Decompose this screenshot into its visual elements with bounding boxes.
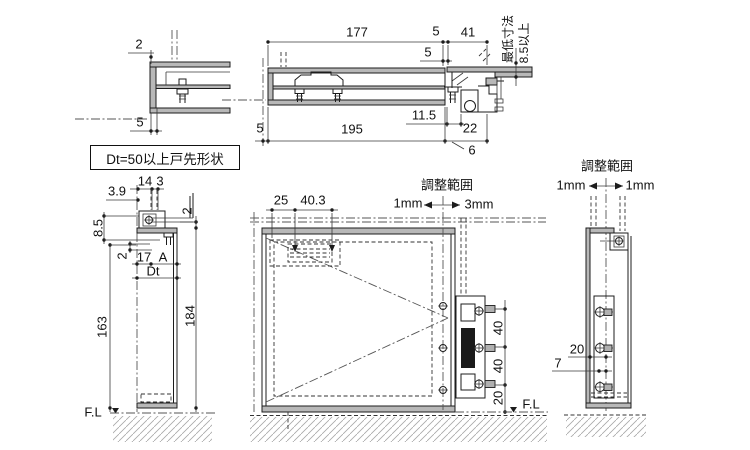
adjust-min-center: 1mm	[394, 197, 423, 210]
corner-detail-drawing	[75, 30, 230, 135]
latch-opening	[461, 328, 475, 368]
dim-head-lip: 6	[468, 144, 475, 157]
dim-edge-184: 184	[184, 305, 197, 327]
dim-edge-a: A	[159, 251, 168, 264]
label-min-dimension: 最低寸法	[502, 15, 514, 63]
dim-edge-2-right: 2	[181, 207, 194, 214]
dim-corner-bottom: 5	[136, 116, 143, 129]
corner-top-flange	[150, 62, 230, 67]
dim-elev-40a: 40	[492, 321, 505, 335]
dim-elev-20: 20	[492, 391, 505, 405]
adjust-max-center: 3mm	[465, 198, 494, 211]
dim-edge-dt: Dt	[147, 265, 160, 278]
adjust-max-right: 1mm	[626, 179, 655, 192]
jamb-wall	[586, 228, 590, 408]
ground-hatch-right	[566, 417, 646, 437]
dim-edge-3: 3	[156, 175, 163, 188]
dim-edge-17: 17	[137, 251, 151, 264]
dim-head-depth: 41	[461, 26, 475, 39]
floor-label-left: F.L	[84, 406, 101, 419]
corner-bolt	[177, 89, 188, 94]
note-box: Dt=50以上戸先形状	[90, 145, 240, 170]
latch-roller	[465, 101, 476, 112]
panel-hidden-outline	[274, 242, 432, 396]
dim-head-left: 5	[256, 122, 263, 135]
dim-head-gap-top: 5	[432, 25, 439, 38]
dim-elev-403: 40.3	[300, 194, 325, 207]
head-section-drawing	[222, 40, 532, 149]
dim-jamb-20: 20	[570, 343, 584, 356]
corner-bottom-flange	[150, 108, 230, 113]
drawing-linework	[0, 0, 750, 450]
adjust-title-center: 調整範囲	[421, 179, 473, 192]
latch-bolt	[448, 87, 458, 92]
hanger-bracket	[295, 72, 343, 86]
dim-head-total: 195	[341, 123, 363, 136]
technical-drawing-canvas: Dt=50以上戸先形状 2 5 177 5 41 5 最低寸法 8.5以上 11…	[0, 0, 750, 450]
dim-elev-40b: 40	[492, 359, 505, 373]
dim-jamb-7: 7	[554, 357, 561, 370]
note-box-text: Dt=50以上戸先形状	[106, 148, 223, 168]
dim-edge-14: 14	[138, 175, 152, 188]
adjust-title-right: 調整範囲	[581, 160, 633, 173]
dim-head-gap-side: 5	[424, 46, 431, 59]
dim-head-offset: 11.5	[412, 109, 436, 122]
dim-head-width: 177	[346, 26, 368, 39]
ground-hatch-center	[250, 417, 547, 442]
adjust-min-right: 1mm	[557, 179, 586, 192]
door-edge-section-drawing	[102, 185, 215, 442]
panel-top-edge	[262, 228, 455, 234]
dim-edge-2-left: 2	[116, 252, 129, 259]
dim-edge-163: 163	[96, 316, 109, 338]
jamb-section-drawing	[552, 178, 648, 437]
door-leaf-top	[137, 228, 177, 233]
floor-label-center: F.L	[522, 398, 539, 411]
dim-edge-39: 3.9	[108, 185, 126, 198]
value-min-dimension: 8.5以上	[518, 23, 530, 64]
ground-hatch-left	[113, 416, 212, 442]
dim-corner-top: 2	[135, 38, 142, 51]
dim-elev-25: 25	[274, 194, 288, 207]
head-top-flange	[268, 68, 445, 73]
dim-edge-85: 8.5	[92, 219, 105, 237]
dim-head-edge: 22	[463, 122, 477, 135]
